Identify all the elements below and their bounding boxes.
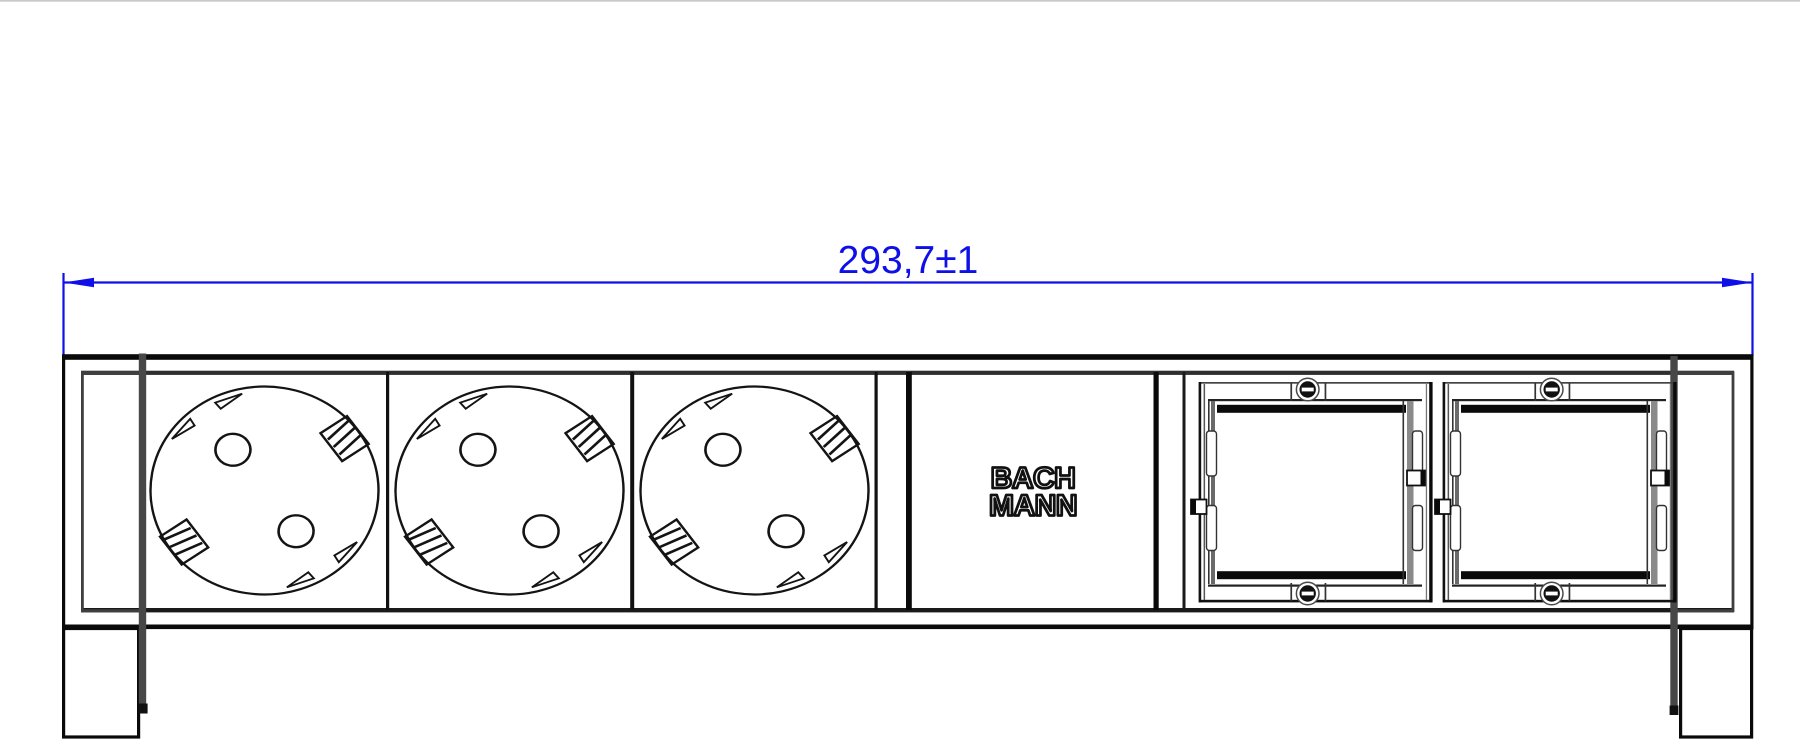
- svg-text:293,7±1: 293,7±1: [838, 239, 979, 282]
- svg-text:MANN: MANN: [989, 490, 1077, 523]
